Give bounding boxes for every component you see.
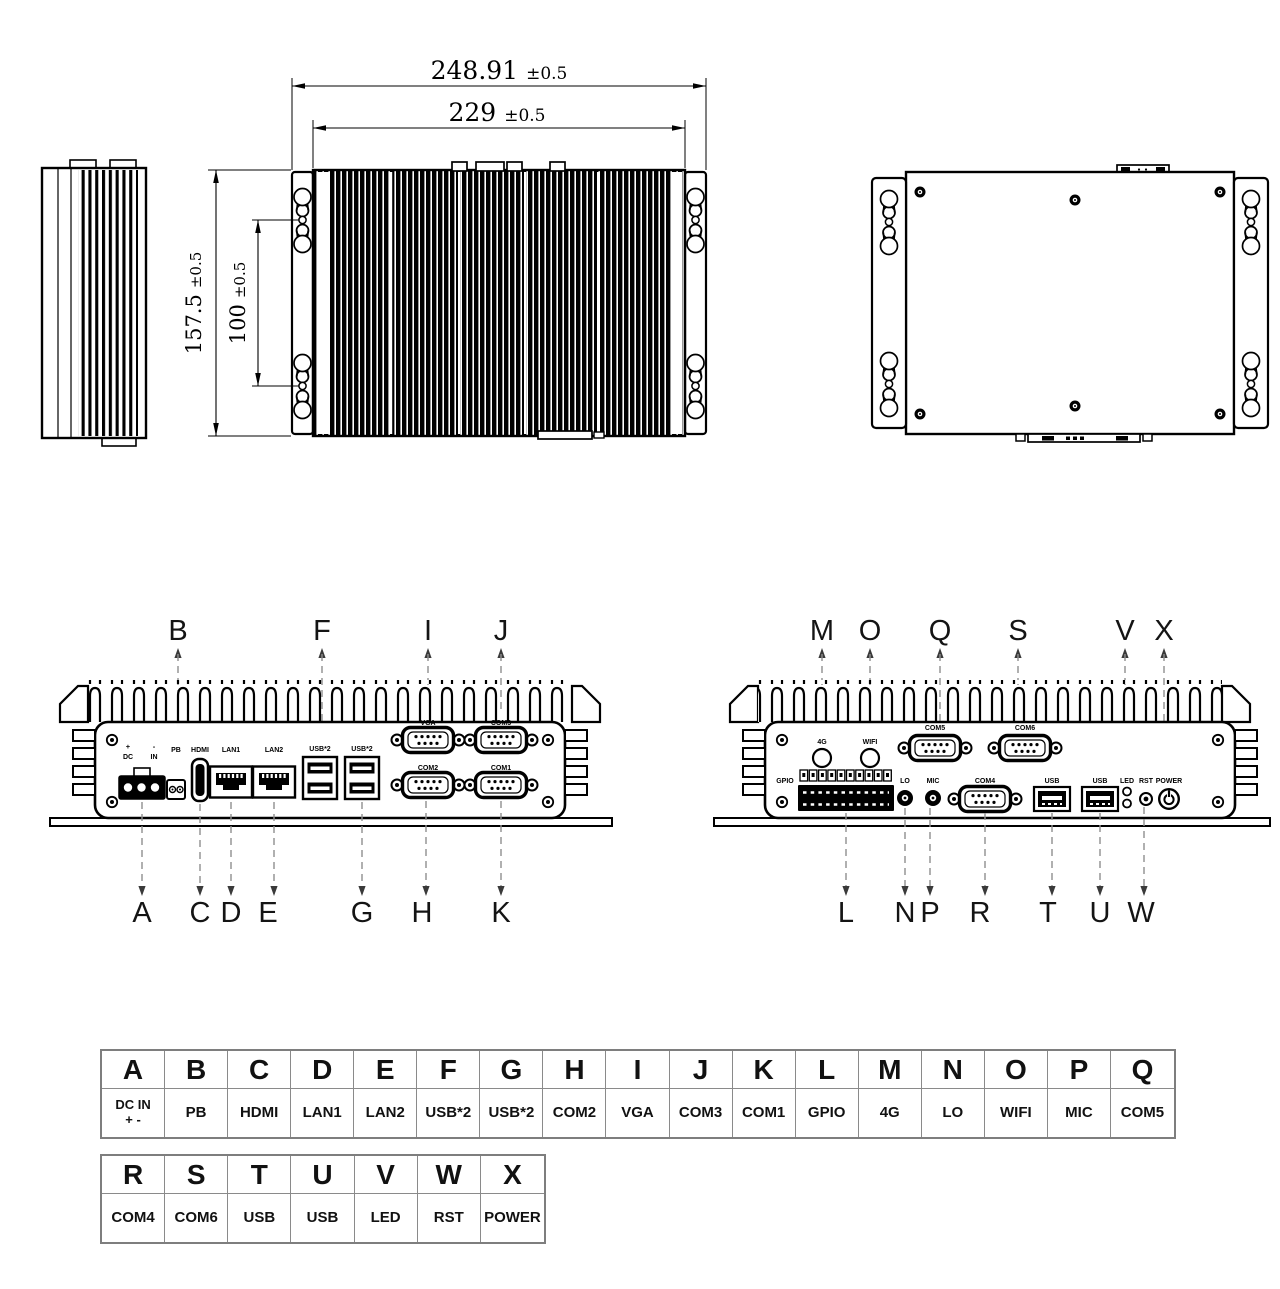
legend-value-cell: POWER (481, 1194, 544, 1242)
mic-jack (925, 790, 941, 806)
line-out-label: LO (900, 778, 910, 785)
com5-port (899, 736, 972, 761)
callout-letter: N (895, 897, 916, 929)
callout-letter: R (970, 897, 991, 929)
power-label: POWER (1156, 778, 1182, 785)
center-screw-hole (1070, 401, 1081, 412)
front-panel-view: B F I J (50, 615, 612, 929)
panel-screw (107, 797, 117, 807)
dimension-text: 157.5±0.5 (182, 252, 206, 355)
legend-header-cell: T (228, 1156, 291, 1194)
callout-letter: C (190, 897, 211, 929)
callout-letter: D (221, 897, 242, 929)
usb-port (1034, 787, 1070, 811)
technical-drawing-canvas: 248.91±0.5 229±0.5 157.5±0.5 (0, 0, 1280, 975)
legend-header-cell: Q (1111, 1051, 1174, 1089)
callout-letter: B (168, 615, 187, 647)
panel-screw (1213, 735, 1223, 745)
legend-header-cell: W (418, 1156, 481, 1194)
callout-letter: J (494, 615, 509, 647)
legend-header-cell: X (481, 1156, 544, 1194)
legend-value-cell: LED (355, 1194, 418, 1242)
legend-value-cell: COM2 (543, 1089, 606, 1137)
legend-header-cell: J (670, 1051, 733, 1089)
legend-header-cell: V (355, 1156, 418, 1194)
callout-letter: E (258, 897, 277, 929)
corner-screw (915, 409, 926, 420)
legend-header-cell: U (291, 1156, 354, 1194)
mic-label: MIC (927, 778, 940, 785)
legend-header-cell: O (985, 1051, 1048, 1089)
legend-value-cell: COM3 (670, 1089, 733, 1137)
panel-screw (777, 735, 787, 745)
legend-header-cell: P (1048, 1051, 1111, 1089)
legend-value-cell: PB (165, 1089, 228, 1137)
legend-header-cell: B (165, 1051, 228, 1089)
legend-header-cell: C (228, 1051, 291, 1089)
com4-port (949, 787, 1022, 812)
technical-drawing-page: 248.91±0.5 229±0.5 157.5±0.5 (0, 0, 1280, 1289)
legend-value-cell: USB (291, 1194, 354, 1242)
callout-letter: A (132, 897, 152, 929)
legend-value-cell: MIC (1048, 1089, 1111, 1137)
com3-port (465, 728, 538, 753)
legend-value-cell: RST (418, 1194, 481, 1242)
legend-header-cell: E (354, 1051, 417, 1089)
side-fins-left (73, 730, 95, 795)
front-chassis (50, 680, 612, 826)
legend-value-cell: COM4 (102, 1194, 165, 1242)
hdmi-port (192, 759, 208, 801)
panel-screw (543, 797, 553, 807)
legend-header-cell: L (796, 1051, 859, 1089)
legend-table-secondary: R S T U V W X COM4 COM6 USB USB LED RST … (100, 1154, 546, 1244)
dimension-inner-width: 229±0.5 (313, 98, 685, 168)
side-view-fins (78, 170, 138, 436)
callout-letter: O (859, 615, 882, 647)
usb-dual-port (345, 757, 379, 799)
callout-letter: X (1154, 615, 1173, 647)
com6-label: COM6 (1015, 725, 1035, 732)
callout-letter: L (838, 897, 854, 929)
legend-header-cell: K (733, 1051, 796, 1089)
callout-letter: H (412, 897, 433, 929)
legend-value-cell: HDMI (228, 1089, 291, 1137)
heatsink-fins (88, 680, 572, 722)
legend-header-cell: D (291, 1051, 354, 1089)
legend-value-cell: USB*2 (480, 1089, 543, 1137)
usb-label: USB (1093, 778, 1108, 785)
pb-label: PB (171, 747, 181, 754)
gpio-label: GPIO (776, 778, 794, 785)
dimension-text: 229±0.5 (449, 98, 546, 127)
callout-letter: I (424, 615, 432, 647)
legend-header-cell: H (543, 1051, 606, 1089)
callout-letter: P (920, 897, 939, 929)
usb-port (1082, 787, 1118, 811)
legend-table-primary: A B C D E F G H I J K L M N O P Q DC IN … (100, 1049, 1176, 1139)
legend-header-cell: N (922, 1051, 985, 1089)
top-view (292, 162, 706, 439)
lan2-port (253, 767, 295, 798)
rear-panel-view: M O Q S V X (714, 615, 1270, 929)
corner-screw (1215, 409, 1226, 420)
top-view-fins (313, 170, 685, 436)
gpio-terminal (798, 770, 894, 811)
4g-label: 4G (817, 739, 827, 746)
4g-antenna-hole (813, 749, 831, 767)
wifi-antenna-hole (861, 749, 879, 767)
dc-label: DC (123, 754, 133, 761)
dimension-text: 248.91±0.5 (431, 56, 568, 85)
legend-header-cell: I (606, 1051, 669, 1089)
legend-value-cell: DC IN + - (102, 1089, 165, 1137)
dimension-outer-width: 248.91±0.5 (292, 56, 706, 170)
legend-header-cell: S (165, 1156, 228, 1194)
legend-value-cell: USB (228, 1194, 291, 1242)
com6-port (989, 736, 1062, 761)
panel-screw (107, 735, 117, 745)
callout-letter: Q (929, 615, 952, 647)
com1-port (465, 773, 538, 798)
legend-header-cell: F (417, 1051, 480, 1089)
callout-letter: V (1115, 615, 1135, 647)
callout-letter: G (351, 897, 374, 929)
lan2-label: LAN2 (265, 747, 283, 754)
legend-header-cell: R (102, 1156, 165, 1194)
legend-value-cell: COM1 (733, 1089, 796, 1137)
side-fins-right (1235, 730, 1257, 795)
legend-header-cell: M (859, 1051, 922, 1089)
side-fins-left (743, 730, 765, 795)
rst-label: RST (1139, 778, 1154, 785)
heatsink-fins (758, 680, 1222, 722)
wifi-label: WIFI (863, 739, 878, 746)
legend-value-cell: LO (922, 1089, 985, 1137)
legend-value-cell: WIFI (985, 1089, 1048, 1137)
dc-label: IN (151, 754, 158, 761)
power-button (1159, 789, 1179, 809)
dimension-height: 157.5±0.5 (182, 170, 291, 436)
corner-screw (1215, 187, 1226, 198)
legend-value-cell: LAN2 (354, 1089, 417, 1137)
legend-value-cell: GPIO (796, 1089, 859, 1137)
callout-letter: K (491, 897, 511, 929)
panel-screw (543, 735, 553, 745)
legend-value-cell: 4G (859, 1089, 922, 1137)
legend-header-cell: A (102, 1051, 165, 1089)
legend-value-cell: COM6 (165, 1194, 228, 1242)
com2-port (392, 773, 465, 798)
com5-label: COM5 (925, 725, 945, 732)
usb-label: USB*2 (309, 746, 331, 753)
dimension-text: 100±0.5 (226, 262, 250, 345)
pb-connector (167, 780, 185, 799)
hdmi-label: HDMI (191, 747, 209, 754)
legend-header-cell: G (480, 1051, 543, 1089)
corner-screw (915, 187, 926, 198)
callout-letter: T (1039, 897, 1057, 929)
callout-letter: U (1090, 897, 1111, 929)
lan1-port (210, 767, 252, 798)
callout-letter: S (1008, 615, 1027, 647)
dimension-hole-pitch: 100±0.5 (226, 220, 299, 386)
led-label: LED (1120, 778, 1134, 785)
usb-label: USB*2 (351, 746, 373, 753)
com4-label: COM4 (975, 778, 995, 785)
usb-dual-port (303, 757, 337, 799)
legend-value-cell: COM5 (1111, 1089, 1174, 1137)
callout-letter: W (1127, 897, 1155, 929)
side-view (42, 160, 146, 446)
center-screw-hole (1070, 195, 1081, 206)
side-fins-right (565, 730, 587, 795)
panel-screw (1213, 797, 1223, 807)
legend-value-cell: VGA (606, 1089, 669, 1137)
legend-value-cell: LAN1 (291, 1089, 354, 1137)
callout-letter: F (313, 615, 331, 647)
legend-value-cell: USB*2 (417, 1089, 480, 1137)
lan1-label: LAN1 (222, 747, 240, 754)
bottom-view-body (906, 172, 1234, 434)
bottom-view (872, 165, 1268, 442)
reset-button (1140, 793, 1152, 805)
dc-plus-label: + (126, 742, 131, 751)
usb-label: USB (1045, 778, 1060, 785)
callout-letter: M (810, 615, 834, 647)
line-out-jack (897, 790, 913, 806)
panel-screw (777, 797, 787, 807)
vga-port (392, 728, 465, 753)
dimension-views: 248.91±0.5 229±0.5 157.5±0.5 (42, 56, 1268, 446)
